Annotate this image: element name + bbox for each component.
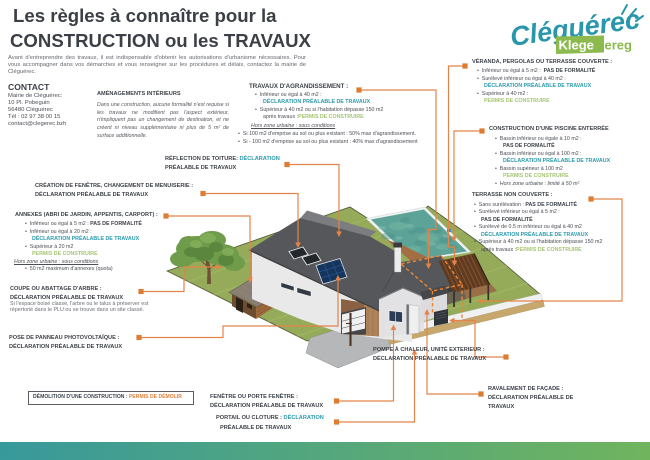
svg-text:ereg: ereg (605, 38, 633, 53)
svg-text:Klege: Klege (559, 38, 594, 53)
